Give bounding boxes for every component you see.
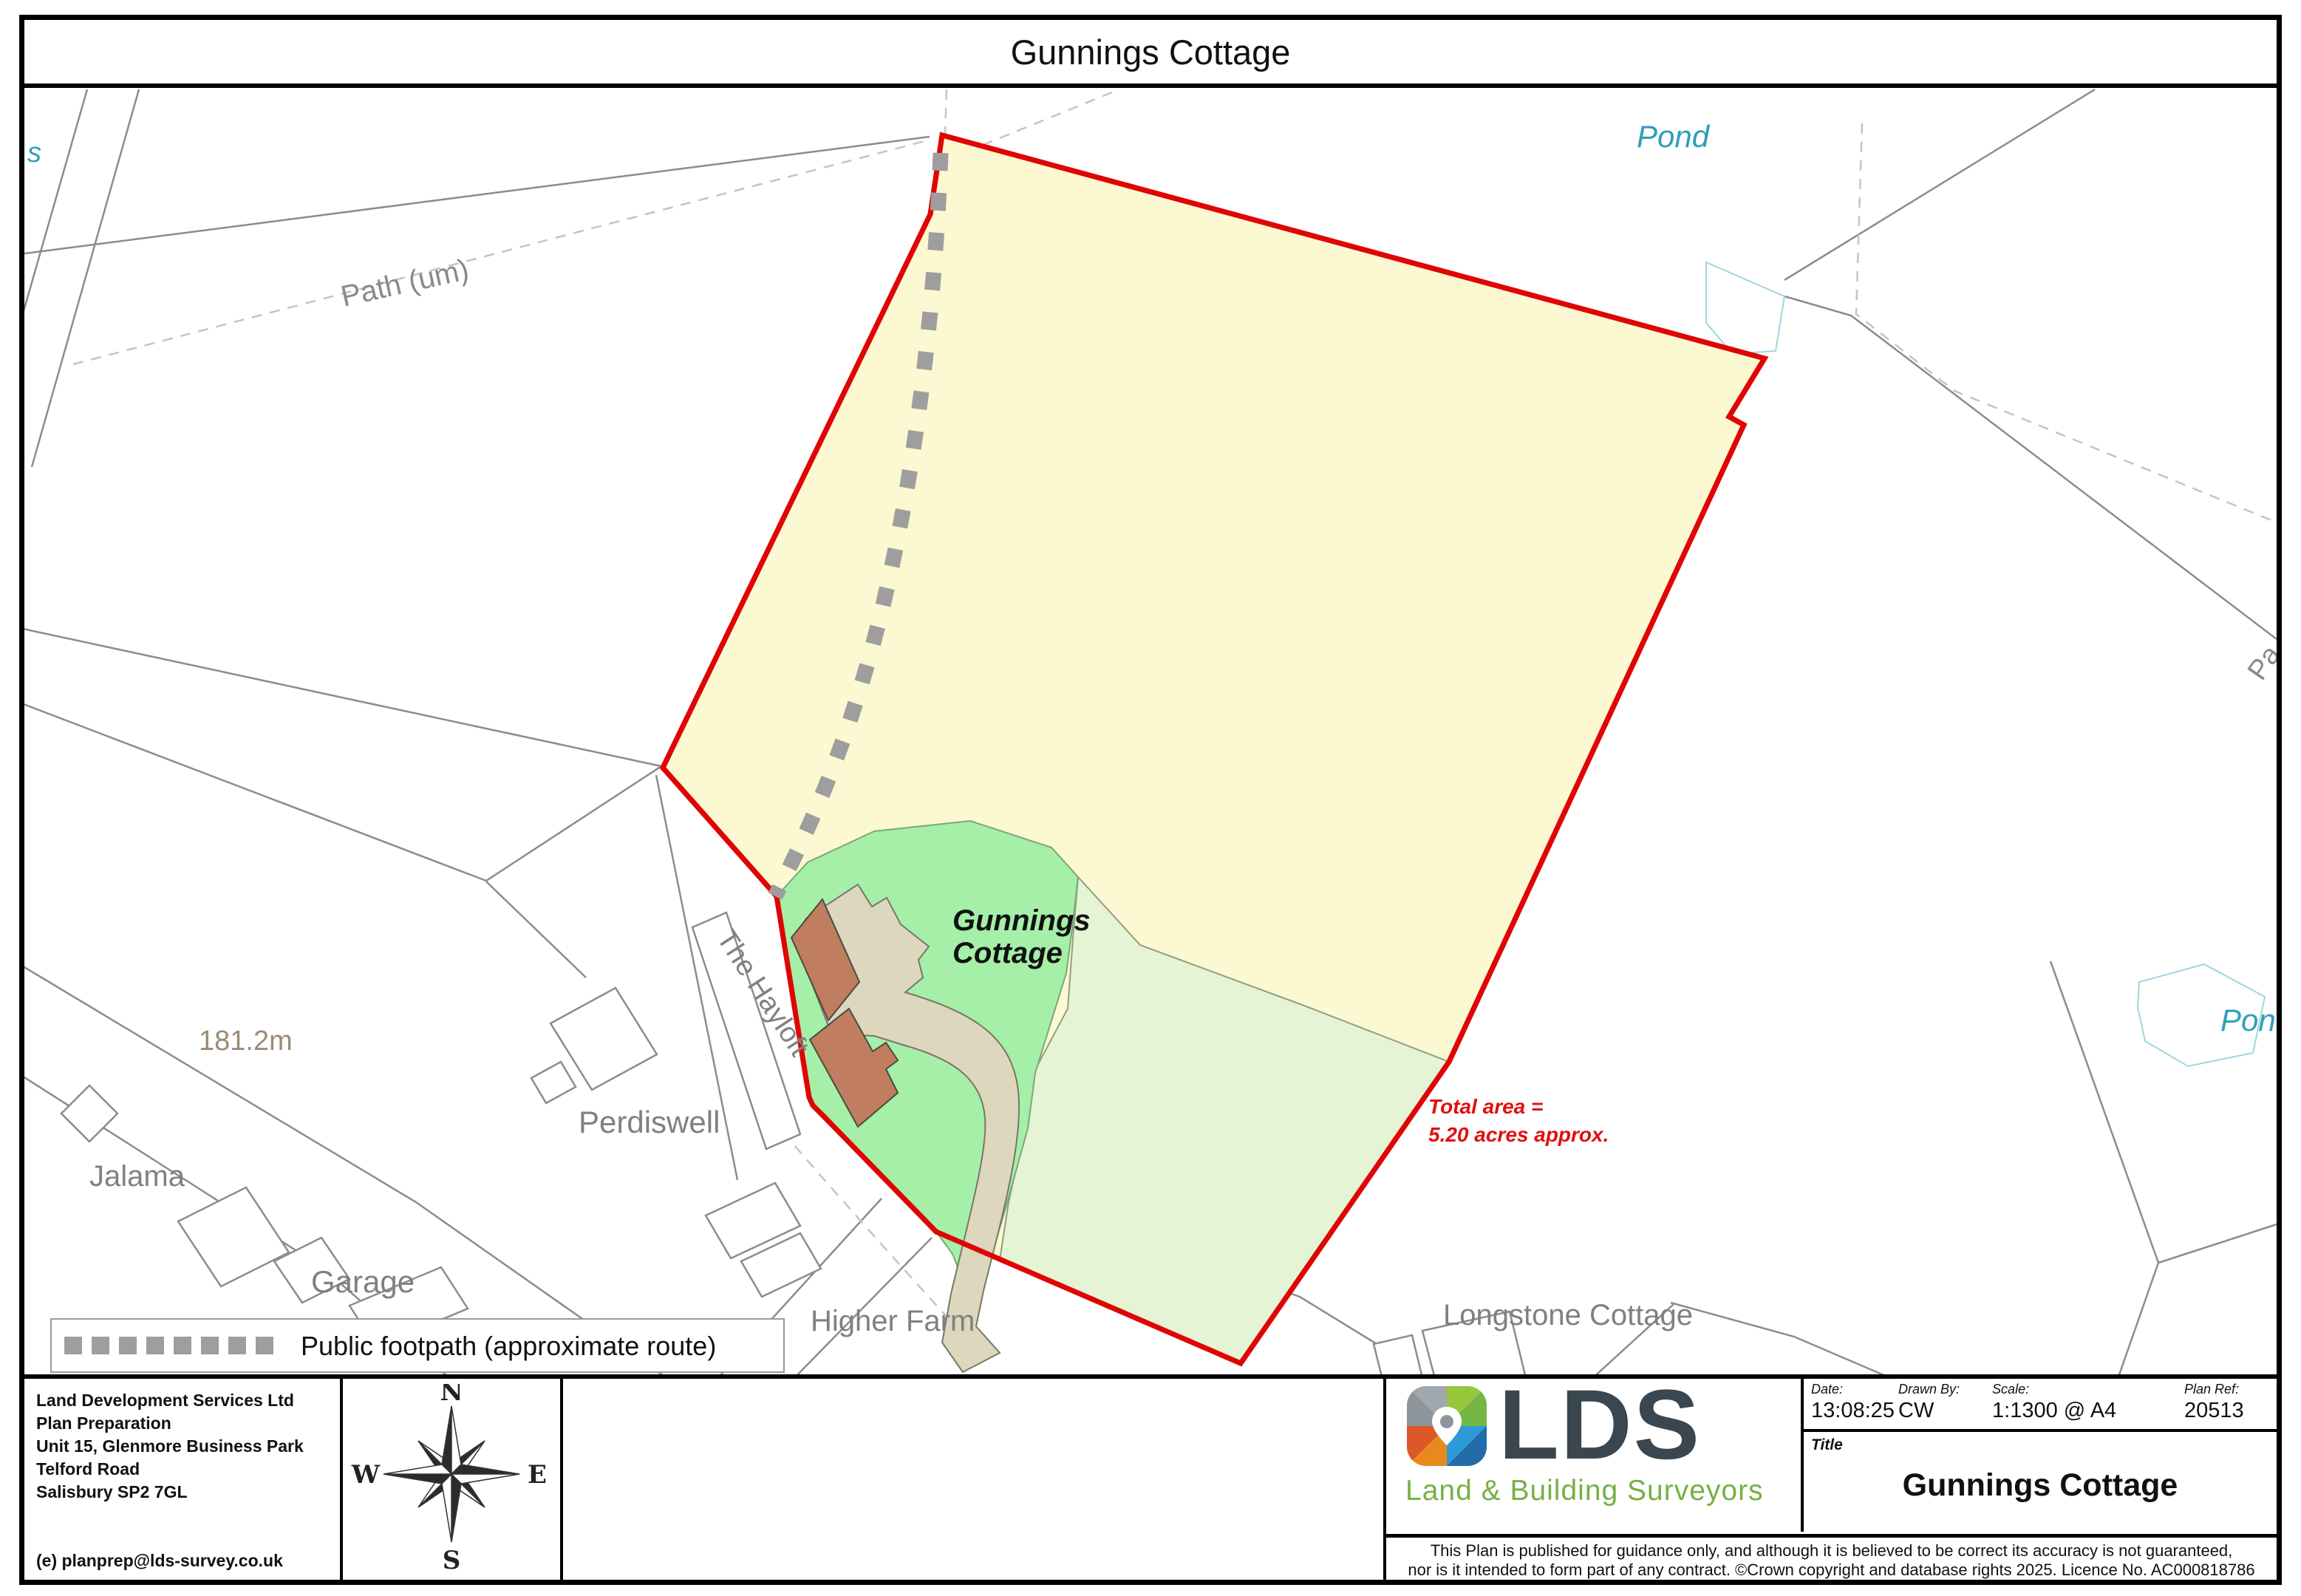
lds-logo-cell: LDS Land & Building Surveyors [1386, 1379, 1804, 1532]
empty-cell [563, 1379, 1383, 1580]
legend-label: Public footpath (approximate route) [301, 1331, 716, 1361]
disclaimer-line1: This Plan is published for guidance only… [1386, 1541, 2277, 1561]
label-pond-top: Pond [1637, 119, 1711, 154]
label-site-line2: Cottage [952, 937, 1063, 969]
page-title: Gunnings Cottage [24, 20, 2277, 88]
compass-e: E [528, 1460, 547, 1490]
compass-n: N [440, 1384, 463, 1407]
plan-title-cell: Title Gunnings Cottage [1804, 1432, 2277, 1532]
label-total-area-2: 5.20 acres approx. [1428, 1123, 1609, 1146]
lds-wordmark: LDS [1499, 1385, 1701, 1466]
compass-cell: N E S W [343, 1379, 563, 1580]
company-line: Plan Preparation [36, 1412, 340, 1435]
company-line: Telford Road [36, 1458, 340, 1481]
plan-sheet: Gunnings Cottage [19, 15, 2282, 1585]
footer-right: LDS Land & Building Surveyors Date: 13:0… [1383, 1379, 2277, 1580]
meta-scale: Scale: 1:1300 @ A4 [1985, 1379, 2177, 1429]
company-line: Unit 15, Glenmore Business Park [36, 1435, 340, 1458]
meta-date: Date: 13:08:25 [1804, 1379, 1891, 1429]
lds-tagline: Land & Building Surveyors [1405, 1475, 1801, 1507]
compass-s: S [443, 1546, 461, 1575]
legend: Public footpath (approximate route) [51, 1319, 784, 1372]
disclaimer: This Plan is published for guidance only… [1386, 1534, 2277, 1580]
plan-title: Gunnings Cottage [1804, 1467, 2277, 1504]
label-total-area-1: Total area = [1428, 1095, 1543, 1118]
label-pond-right: Pond [2220, 1003, 2277, 1037]
compass-rose-icon: N E S W [344, 1384, 559, 1575]
compass-w: W [351, 1460, 381, 1490]
label-jalama: Jalama [89, 1160, 185, 1193]
label-site-line1: Gunnings [952, 904, 1091, 937]
label-perdiswell: Perdiswell [579, 1105, 720, 1139]
map-area: s Path (um) Pond Pond Pa 181.2m Jalama G… [24, 88, 2277, 1379]
label-partial-s: s [27, 137, 41, 168]
label-higher-farm: Higher Farm [811, 1305, 975, 1337]
label-spot-height: 181.2m [199, 1026, 293, 1057]
disclaimer-line2: nor is it intended to form part of any c… [1386, 1561, 2277, 1580]
contact-email: (e) planprep@lds-survey.co.uk [36, 1551, 283, 1571]
pond-top-shape [1706, 262, 1784, 354]
company-line: Salisbury SP2 7GL [36, 1481, 340, 1504]
title-label: Title [1811, 1436, 1843, 1454]
label-longstone: Longstone Cottage [1443, 1299, 1693, 1331]
meta-drawn-by: Drawn By: CW [1891, 1379, 1985, 1429]
label-garage: Garage [311, 1264, 415, 1299]
surveyor-address-block: Land Development Services Ltd Plan Prepa… [24, 1379, 343, 1580]
label-path-um: Path (um) [338, 253, 471, 313]
title-block: Land Development Services Ltd Plan Prepa… [24, 1374, 2277, 1580]
lds-logo-icon [1405, 1385, 1488, 1467]
company-line: Land Development Services Ltd [36, 1389, 340, 1412]
meta-cell: Date: 13:08:25 Drawn By: CW Scale: 1:130… [1804, 1379, 2277, 1532]
meta-plan-ref: Plan Ref: 20513 [2177, 1379, 2277, 1429]
pond-outlines [1706, 262, 2265, 1066]
label-partial-pa: Pa [2242, 639, 2277, 686]
